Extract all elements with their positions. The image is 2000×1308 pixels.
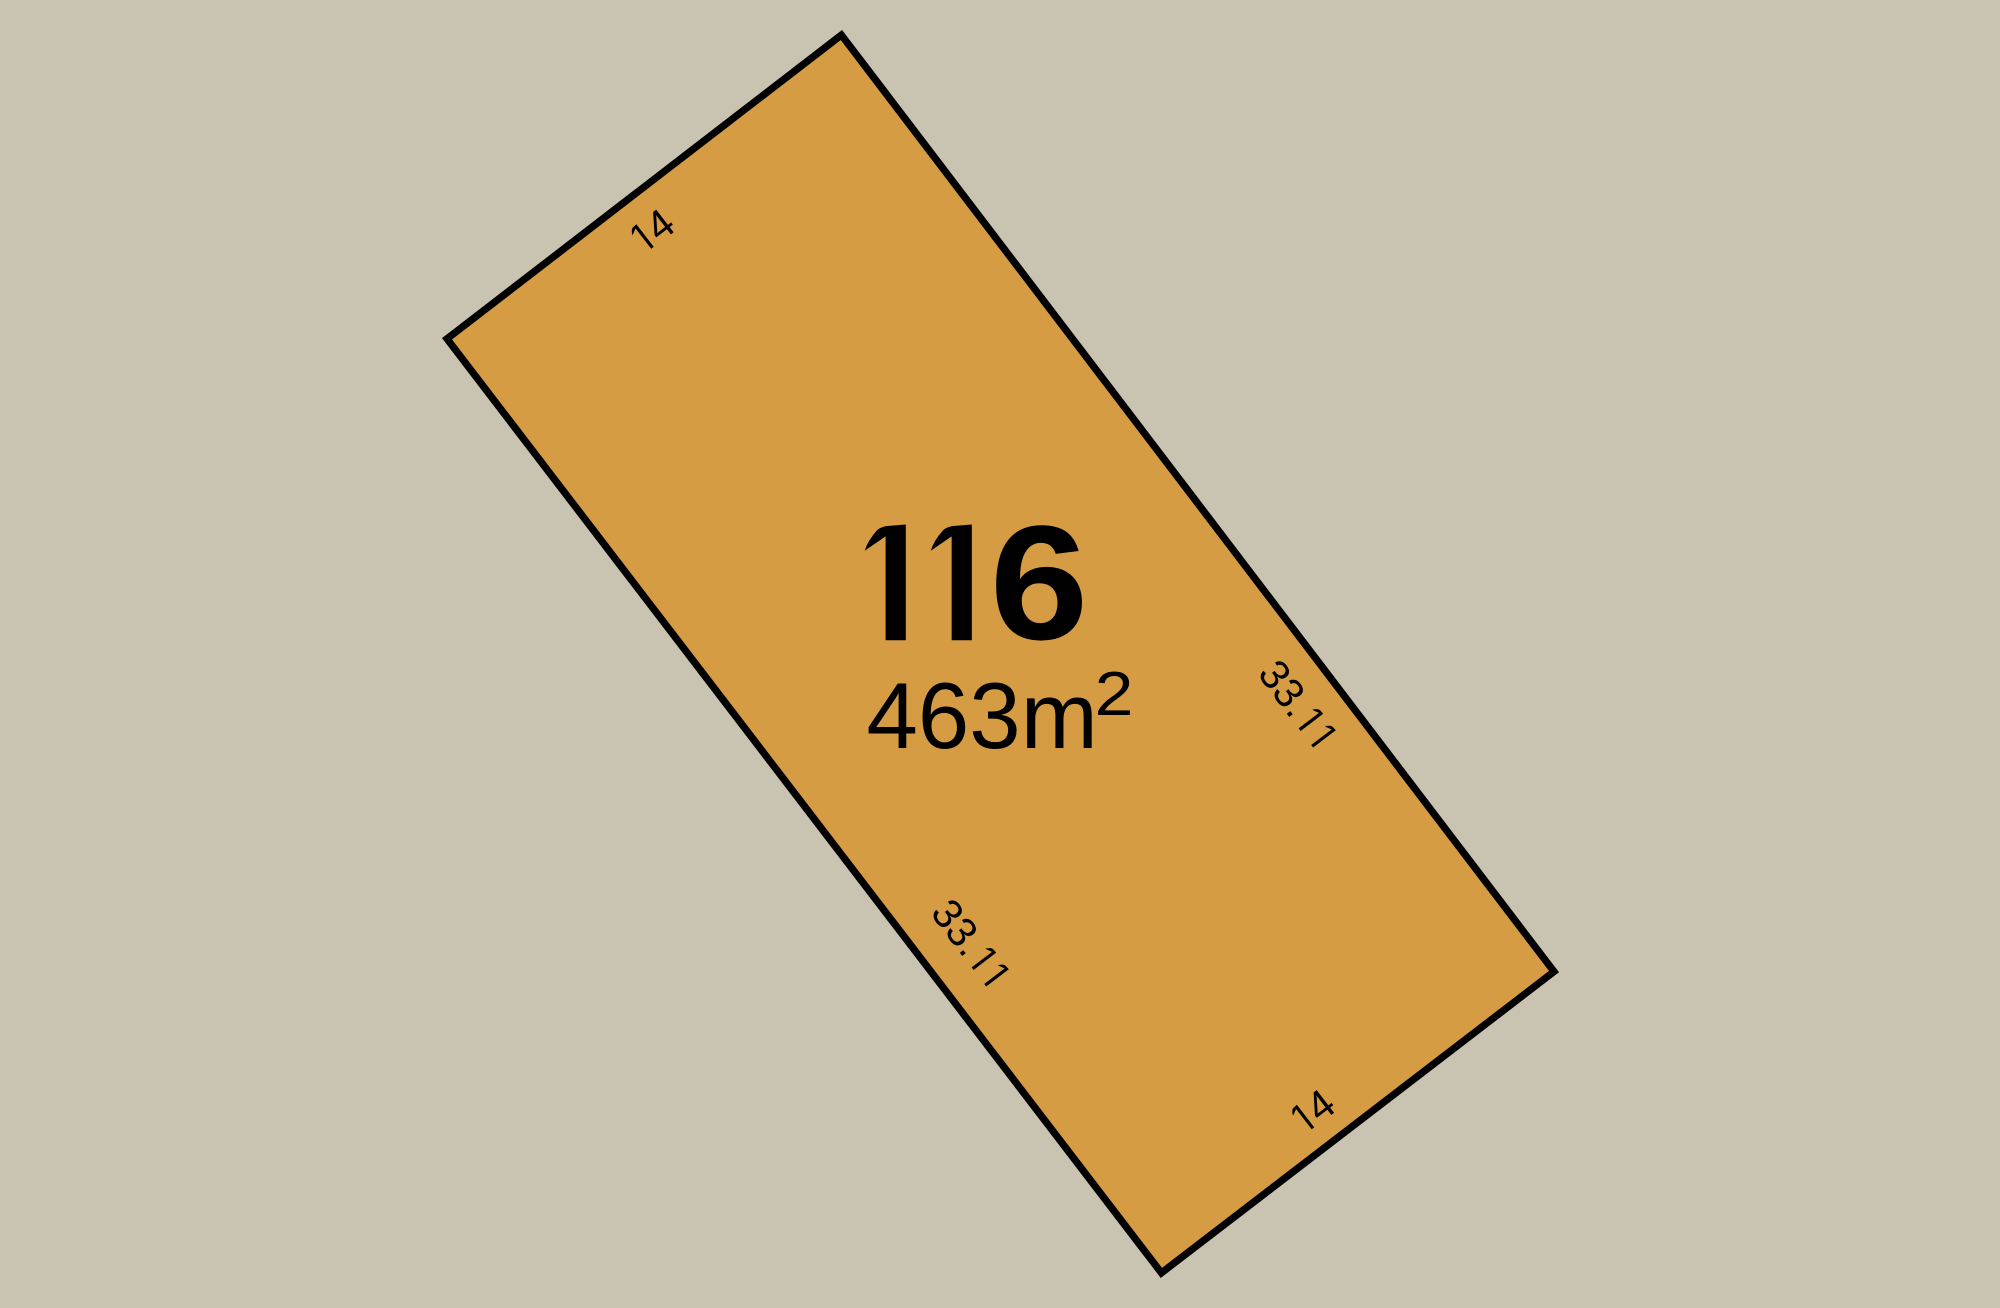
- svg-text:6: 6: [990, 493, 1089, 675]
- svg-text:2: 2: [1095, 659, 1134, 729]
- svg-text:463m: 463m: [866, 663, 1097, 768]
